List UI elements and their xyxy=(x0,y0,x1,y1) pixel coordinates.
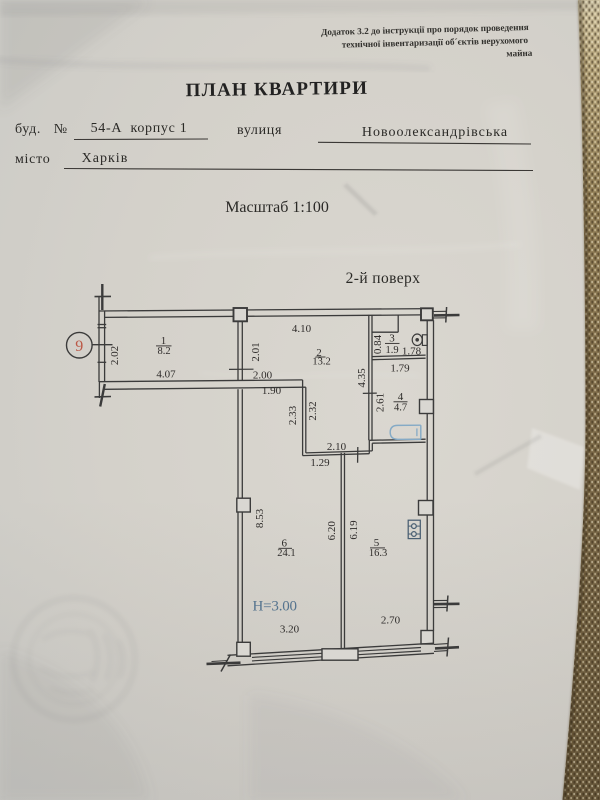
svg-text:Харків: Харків xyxy=(82,151,129,166)
svg-text:Новоолександрівська: Новоолександрівська xyxy=(362,125,508,140)
svg-text:6.19: 6.19 xyxy=(348,520,360,540)
svg-text:9: 9 xyxy=(75,338,83,355)
svg-text:6.20: 6.20 xyxy=(326,521,338,541)
svg-text:2.70: 2.70 xyxy=(381,615,401,627)
svg-text:ПЛАН КВАРТИРИ: ПЛАН КВАРТИРИ xyxy=(186,78,369,102)
svg-text:1.9: 1.9 xyxy=(385,345,398,356)
svg-text:4.7: 4.7 xyxy=(394,403,407,414)
svg-text:1.29: 1.29 xyxy=(310,457,330,469)
svg-text:4.35: 4.35 xyxy=(356,368,368,388)
svg-text:2.01: 2.01 xyxy=(250,342,262,361)
svg-text:0.84: 0.84 xyxy=(372,334,384,354)
svg-text:2.10: 2.10 xyxy=(327,441,347,453)
svg-text:4: 4 xyxy=(398,391,404,403)
svg-text:8.53: 8.53 xyxy=(254,508,266,528)
svg-text:3.20: 3.20 xyxy=(280,624,300,636)
svg-text:4.10: 4.10 xyxy=(292,323,312,335)
svg-text:вулиця: вулиця xyxy=(237,123,282,138)
svg-text:місто: місто xyxy=(15,152,50,167)
svg-text:2.33: 2.33 xyxy=(287,405,299,425)
svg-text:16.3: 16.3 xyxy=(369,548,387,559)
svg-text:1.90: 1.90 xyxy=(262,385,282,397)
svg-text:4.07: 4.07 xyxy=(156,369,176,381)
svg-text:2-й поверх: 2-й поверх xyxy=(346,270,421,287)
svg-text:Масштаб 1:100: Масштаб 1:100 xyxy=(225,199,329,216)
svg-text:13.2: 13.2 xyxy=(312,356,330,367)
svg-text:буд. №: буд. № xyxy=(15,122,68,137)
svg-text:2.61: 2.61 xyxy=(375,393,387,412)
svg-text:2.02: 2.02 xyxy=(109,346,121,365)
svg-text:H=3.00: H=3.00 xyxy=(253,599,297,615)
svg-text:54-А корпус 1: 54-А корпус 1 xyxy=(91,121,188,136)
svg-text:2.32: 2.32 xyxy=(307,401,319,420)
svg-text:24.1: 24.1 xyxy=(277,548,295,559)
svg-text:8.2: 8.2 xyxy=(157,346,170,357)
svg-text:2.00: 2.00 xyxy=(253,370,273,382)
svg-text:майна: майна xyxy=(506,48,533,59)
svg-text:1.78: 1.78 xyxy=(402,346,422,358)
svg-text:3: 3 xyxy=(389,333,395,345)
svg-text:1.79: 1.79 xyxy=(390,363,410,375)
